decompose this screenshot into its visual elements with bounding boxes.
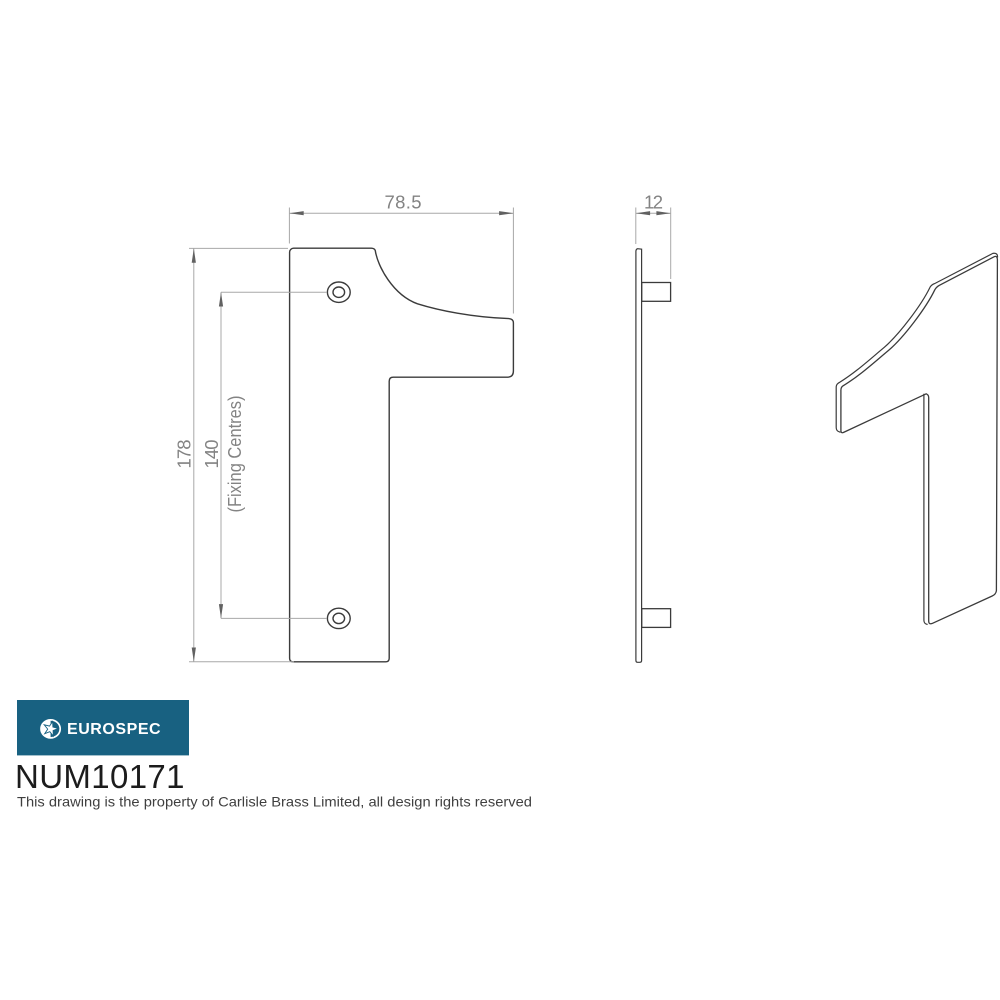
svg-text:EUROSPEC: EUROSPEC bbox=[67, 721, 162, 738]
svg-text:This drawing is the property o: This drawing is the property of Carlisle… bbox=[17, 794, 532, 810]
svg-text:12: 12 bbox=[644, 192, 663, 213]
svg-text:NUM10171: NUM10171 bbox=[15, 758, 185, 795]
svg-text:(Fixing Centres): (Fixing Centres) bbox=[224, 396, 245, 513]
svg-text:78.5: 78.5 bbox=[385, 192, 422, 213]
svg-text:140: 140 bbox=[201, 440, 222, 469]
svg-text:178: 178 bbox=[174, 440, 195, 469]
